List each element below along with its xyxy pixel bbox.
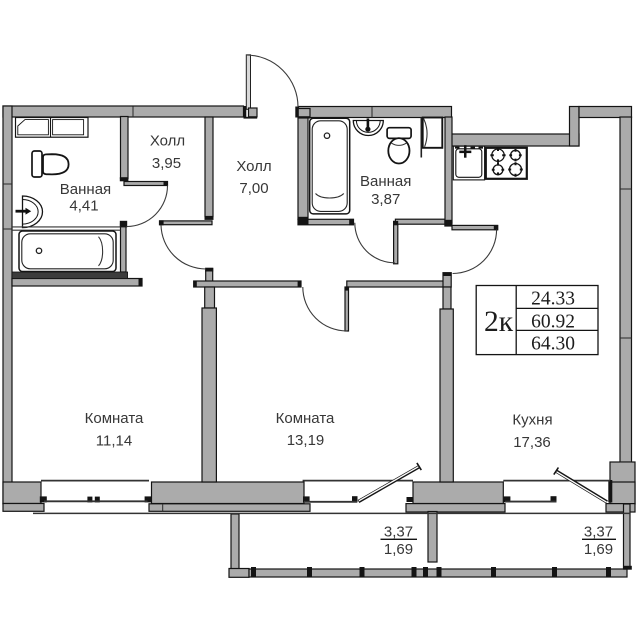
svg-text:2к: 2к: [484, 306, 514, 338]
svg-text:Ванная: Ванная: [60, 181, 111, 198]
svg-text:1,69: 1,69: [384, 541, 413, 558]
svg-text:17,36: 17,36: [513, 434, 551, 451]
svg-text:4,41: 4,41: [69, 198, 98, 215]
svg-text:Холл: Холл: [150, 133, 185, 150]
svg-text:60.92: 60.92: [531, 312, 575, 333]
svg-text:1,69: 1,69: [584, 541, 613, 558]
svg-text:3,95: 3,95: [152, 155, 181, 172]
svg-text:Ванная: Ванная: [360, 173, 411, 190]
svg-text:3,37: 3,37: [584, 524, 613, 541]
svg-text:3,37: 3,37: [384, 524, 413, 541]
svg-text:13,19: 13,19: [287, 432, 325, 449]
svg-text:7,00: 7,00: [239, 180, 268, 197]
svg-text:Комната: Комната: [276, 410, 335, 427]
svg-text:Комната: Комната: [85, 410, 144, 427]
svg-text:64.30: 64.30: [531, 334, 575, 355]
svg-text:11,14: 11,14: [96, 433, 132, 450]
svg-text:Кухня: Кухня: [512, 411, 552, 428]
svg-text:24.33: 24.33: [531, 289, 575, 310]
svg-text:Холл: Холл: [236, 158, 271, 175]
svg-text:3,87: 3,87: [371, 191, 400, 208]
